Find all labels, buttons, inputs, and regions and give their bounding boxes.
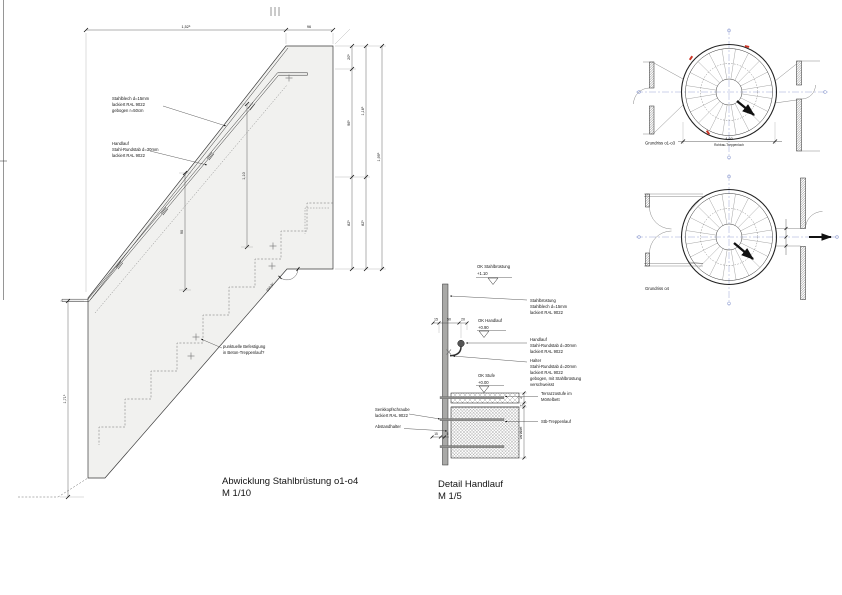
dim-label: 2 — [520, 404, 524, 406]
direction-arrow-icon — [734, 243, 753, 259]
dim-left: 1,71⁵ — [60, 299, 84, 499]
holder-bracket — [450, 347, 461, 356]
dim-right-chains: 20⁵ 96⁵ 82⁵ 1,16⁵ 82⁵ 1,99⁵ — [335, 44, 386, 271]
annotation-text: lackiert RAL 9022 — [530, 349, 564, 354]
detail-scale: M 1/5 — [438, 491, 462, 502]
level-value: +0.90 — [478, 325, 489, 330]
level-label: OK Handlauf — [478, 318, 503, 323]
level-marker-handlauf: OK Handlauf +0.90 — [477, 318, 506, 338]
level-label: OK Stahlbrüstung — [477, 264, 511, 269]
drawing-sheet: 1,52⁵ 96 20⁵ 96⁵ 82⁵ 1,16⁵ 82⁵ 1,99⁵ — [0, 0, 842, 595]
dim-label: 1,10 — [242, 172, 246, 179]
dim-label: 1,99⁵ — [377, 152, 381, 161]
level-label: OK Stufe — [478, 373, 496, 378]
plan-bottom: Grundriss o4 — [636, 174, 840, 306]
dim-label: 20⁵ — [347, 54, 351, 60]
annotation-text: Senkkopfschraube — [375, 407, 410, 412]
level-marker-icon — [488, 278, 498, 285]
level-value: +0.00 — [478, 380, 489, 385]
dim-label: Rohbau-Treppenloch — [714, 143, 744, 147]
annotation-text: Abstandhalter — [375, 424, 401, 429]
dim-label: 1,16⁵ — [361, 106, 365, 115]
level-marker-stufe: OK Stufe +0.00 — [476, 373, 504, 393]
annotation-text: Stahl-Rundstab d=30mm — [112, 147, 159, 152]
dim-label: 82⁵ — [347, 220, 351, 226]
annotation-text: verschweisst — [530, 382, 555, 387]
cad-canvas: 1,52⁵ 96 20⁵ 96⁵ 82⁵ 1,16⁵ 82⁵ 1,99⁵ — [0, 0, 842, 595]
dim-label: 1,71⁵ — [63, 394, 67, 403]
annotation-text: Stahl-Rundstab d=20mm — [530, 364, 577, 369]
marker-red — [689, 45, 749, 135]
annotation-text: Stahlbrüstung — [530, 298, 557, 303]
plan-top-caption: Grundriss o1-o3 — [645, 141, 676, 146]
dim-label: 96 — [307, 25, 311, 29]
annotation-text: Handlauf — [530, 337, 548, 342]
detail-drawing: OK Stahlbrüstung +1.10 Stahlbrüstung Sta… — [375, 264, 582, 502]
annotation-text: gebogen r=50cm — [112, 108, 144, 113]
annotation-text: Stahlblech d=15mm — [530, 304, 568, 309]
dim-label: variabel — [519, 427, 523, 440]
annotation-text: lackiert RAL 9022 — [375, 413, 409, 418]
annotation-text: Halter — [530, 358, 542, 363]
annotation-text: in Beton-Treppenlauf? — [223, 350, 265, 355]
annotation-text: lackiert RAL 9022 — [112, 153, 146, 158]
level-marker-icon — [479, 386, 489, 393]
development-title: Abwicklung Stahlbrüstung o1-o4 — [222, 476, 358, 487]
label-handrail: Handlauf Stahl-Rundstab d=30mm lackiert … — [112, 141, 207, 165]
annotation-text: Handlauf — [112, 141, 130, 146]
annotation-text: lackiert RAL 9022 — [112, 102, 146, 107]
development-scale: M 1/10 — [222, 488, 251, 499]
label-sheet: Stahlblech d=15mm lackiert RAL 9022 gebo… — [112, 96, 226, 126]
dim-label: 15 — [434, 432, 438, 436]
annotation-text: Stb-Treppenlauf — [541, 419, 572, 424]
dim-plan-top: 4,60 Rohbau-Treppenloch — [678, 122, 782, 147]
plan-top: 4,60 Rohbau-Treppenloch Grundriss o1-o3 — [634, 28, 829, 160]
annotation-text: lackiert RAL 9022 — [530, 310, 564, 315]
annotation-text: Terrazzostufe im — [541, 391, 572, 396]
level-marker-icon — [479, 331, 489, 338]
dim-label: 90 — [180, 230, 184, 234]
annotation-text: punktuelle Befestigung — [223, 344, 266, 349]
annotation-text: lackiert RAL 9022 — [530, 370, 564, 375]
dim-label: 15 — [434, 318, 438, 322]
dim-detail-top: 15 50 20 — [432, 318, 469, 339]
level-value: +1.10 — [477, 271, 488, 276]
plan-bottom-caption: Grundriss o4 — [645, 286, 670, 291]
dim-label: 96⁵ — [347, 120, 351, 126]
dim-label: 50 — [447, 318, 451, 322]
annotation-text: gebogen, mit Stahlbrüstung — [530, 376, 582, 381]
annotation-text: Stahlblech d=15mm — [112, 96, 150, 101]
annotation-text: Mörtelbett — [541, 397, 560, 402]
dim-label: 82⁵ — [361, 220, 365, 226]
dim-label: 5 — [447, 432, 449, 436]
handrail-bar-section — [458, 340, 465, 347]
dim-label: 4,60 — [725, 137, 732, 141]
annotation-text: Stahl-Rundstab d=30mm — [530, 343, 577, 348]
dim-label: 4 — [520, 397, 524, 399]
detail-title: Detail Handlauf — [438, 479, 503, 490]
dim-label: 20 — [461, 318, 465, 322]
dim-detail-right: 4 2 variabel — [519, 392, 527, 460]
concrete-run — [451, 407, 519, 458]
development-drawing: 1,52⁵ 96 20⁵ 96⁵ 82⁵ 1,16⁵ 82⁵ 1,99⁵ — [60, 25, 386, 499]
level-marker-bruestung: OK Stahlbrüstung +1.10 — [476, 264, 512, 285]
dim-label: 1,52⁵ — [182, 25, 191, 29]
